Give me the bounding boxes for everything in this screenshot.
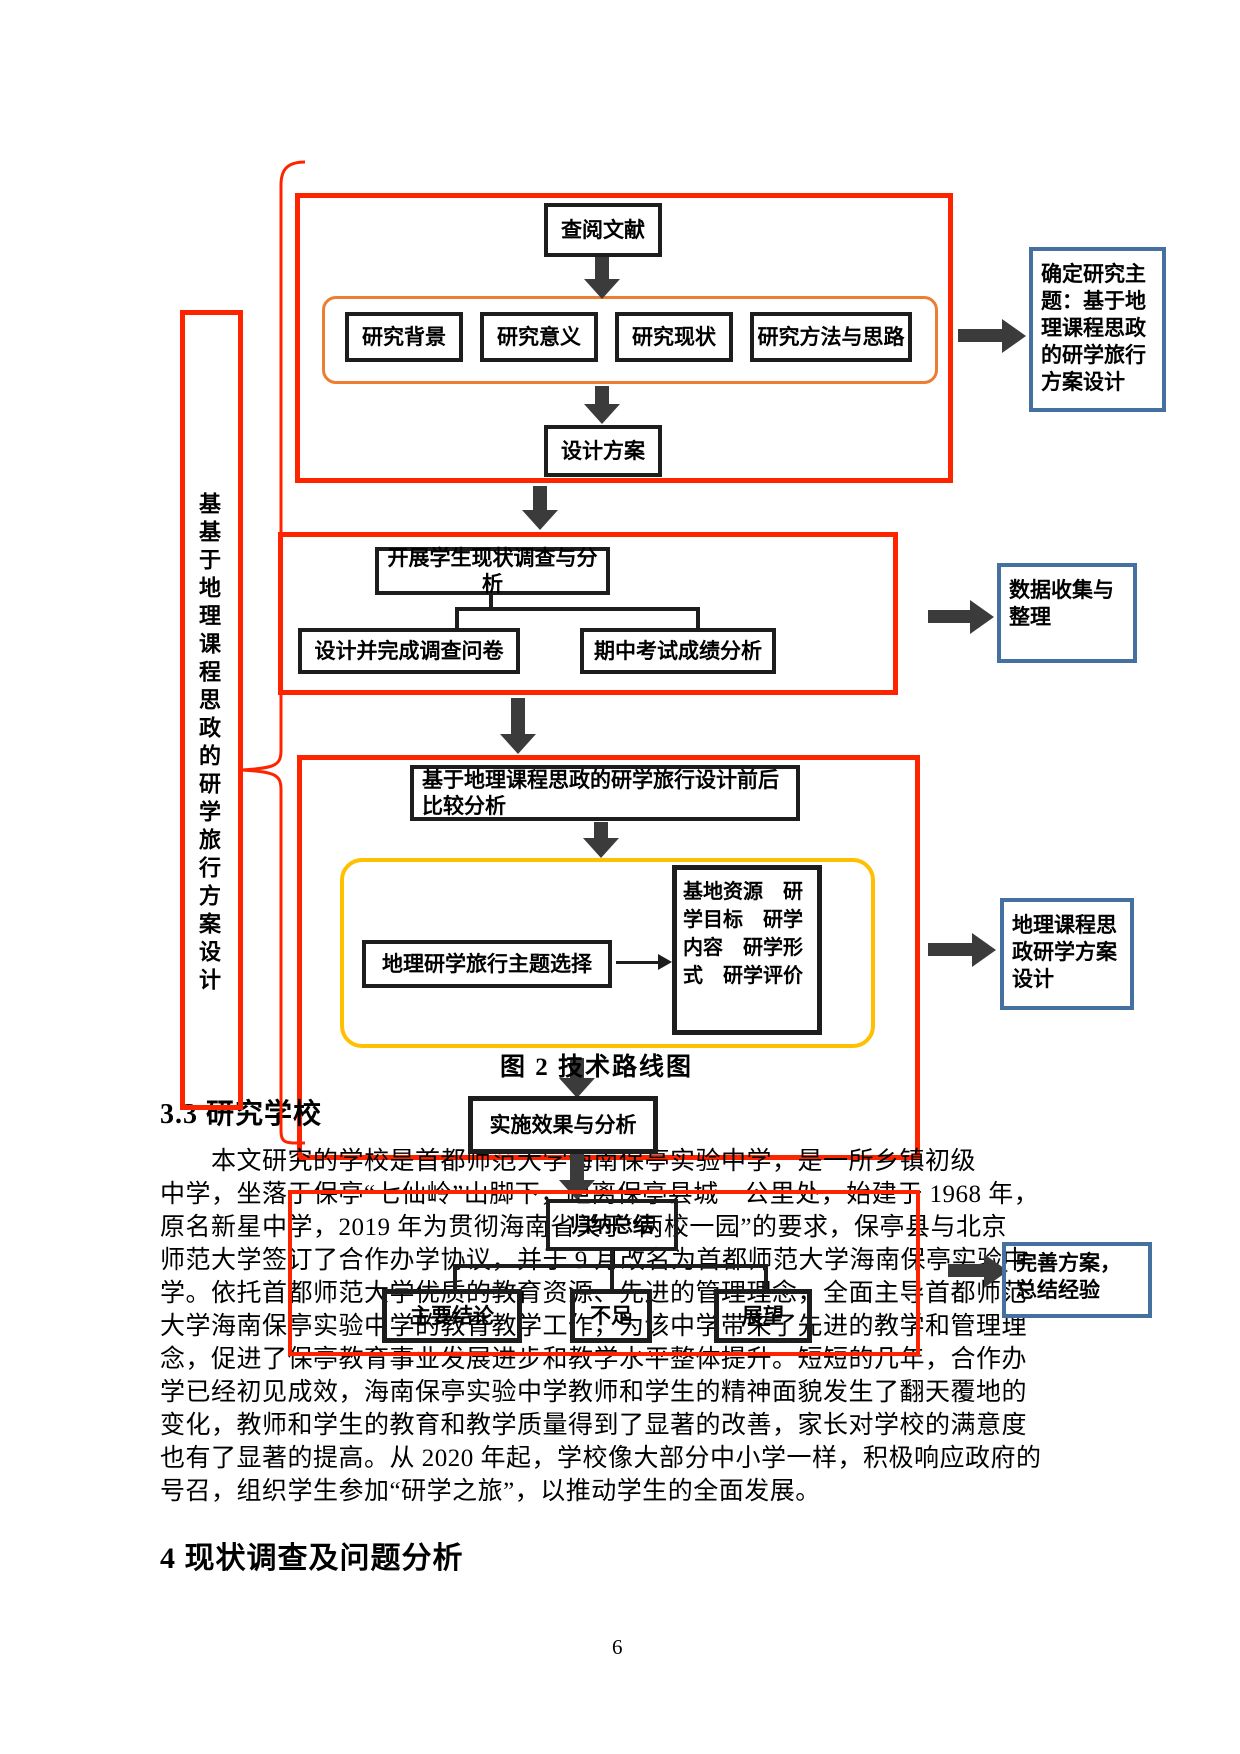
stage4-prospect-box: 展望 <box>714 1289 812 1343</box>
stage3-elements-box: 基地资源 研学目标 研学内容 研学形式 研学评价 <box>672 865 822 1035</box>
stage4-summary-box: 归纳总结 <box>546 1199 678 1251</box>
brace-bracket <box>228 155 312 1155</box>
aspect-method-box: 研究方法与思路 <box>750 312 912 362</box>
stage4-limitation-box: 不足 <box>570 1289 652 1343</box>
stage1-outcome-box: 确定研究主题：基于地理课程思政的研学旅行方案设计 <box>1029 247 1166 412</box>
arrow-down-1-head <box>584 279 620 299</box>
arrow-down-3-shaft <box>594 822 608 838</box>
heading-4: 4 现状调查及问题分析 <box>160 1533 464 1577</box>
document-page: 基基于地理课程思政的研学旅行方案设计 查阅文献 研究背景 研究意义 研究现状 研… <box>0 0 1240 1754</box>
side-label-text: 基基于地理课程思政的研学旅行方案设计 <box>197 492 219 996</box>
stage2-outcome-box: 数据收集与整理 <box>997 563 1137 663</box>
paragraph-line: 号召，组织学生参加“研学之旅”，以推动学生的全面发展。 <box>160 1475 821 1508</box>
stage1-design-box: 设计方案 <box>544 425 662 477</box>
thin-arrow-line <box>616 961 660 964</box>
arrow-s1-s2-head <box>522 510 558 530</box>
arrow-s3-s4-shaft <box>570 1154 584 1180</box>
arrow-s2-s3-shaft <box>511 698 525 734</box>
stage3-compare-box: 基于地理课程思政的研学旅行设计前后比较分析 <box>410 765 800 821</box>
arrow-right-3-head <box>972 933 996 967</box>
stage4-connector-up <box>610 1251 614 1264</box>
arrow-right-2-shaft <box>928 610 970 623</box>
arrow-s1-s2-shaft <box>533 486 547 510</box>
stage2-connector-dr <box>696 611 700 629</box>
stage2-connector-h <box>455 607 700 611</box>
arrow-right-1-shaft <box>958 329 1002 342</box>
thin-arrow-head <box>658 954 672 970</box>
stage2-survey-box: 开展学生现状调查与分析 <box>375 547 610 595</box>
stage2-connector-dl <box>455 611 459 629</box>
stage4-connector-d3 <box>764 1268 768 1289</box>
stage4-connector-d2 <box>610 1268 614 1289</box>
aspect-significance-box: 研究意义 <box>480 312 598 362</box>
paragraph-line: 变化，教师和学生的教育和教学质量得到了显著的改善，家长对学校的满意度 <box>160 1409 1027 1442</box>
stage3-implementation-box: 实施效果与分析 <box>468 1096 658 1154</box>
arrow-right-2-head <box>970 600 994 634</box>
arrow-down-2-head <box>584 404 620 424</box>
stage3-theme-box: 地理研学旅行主题选择 <box>362 940 612 988</box>
page-number: 6 <box>612 1635 623 1660</box>
aspect-background-box: 研究背景 <box>345 312 463 362</box>
stage1-literature-box: 查阅文献 <box>544 203 662 257</box>
aspect-status-box: 研究现状 <box>615 312 733 362</box>
stage2-questionnaire-box: 设计并完成调查问卷 <box>298 628 520 674</box>
stage3-outcome-box: 地理课程思政研学方案设计 <box>1000 898 1134 1010</box>
stage4-connector-d1 <box>453 1268 457 1289</box>
paragraph-line: 也有了显著的提高。从 2020 年起，学校像大部分中小学一样，积极响应政府的 <box>160 1442 1042 1475</box>
arrow-right-3-shaft <box>928 943 972 956</box>
arrow-down-2-shaft <box>595 386 609 404</box>
stage2-exam-box: 期中考试成绩分析 <box>580 628 776 674</box>
stage2-connector-up <box>489 595 493 607</box>
arrow-right-1-head <box>1002 319 1026 353</box>
arrow-down-1-shaft <box>595 257 609 279</box>
paragraph-line: 学已经初见成效，海南保亭实验中学教师和学生的精神面貌发生了翻天覆地的 <box>160 1376 1027 1409</box>
arrow-s2-s3-head <box>500 734 536 754</box>
stage4-outcome-box: 完善方案，总结经验 <box>1002 1242 1152 1318</box>
stage4-conclusion-box: 主要结论 <box>382 1289 522 1343</box>
figure-caption: 图 2 技术路线图 <box>500 1047 693 1083</box>
arrow-right-4-shaft <box>948 1264 984 1277</box>
arrow-down-3-head <box>583 838 619 858</box>
